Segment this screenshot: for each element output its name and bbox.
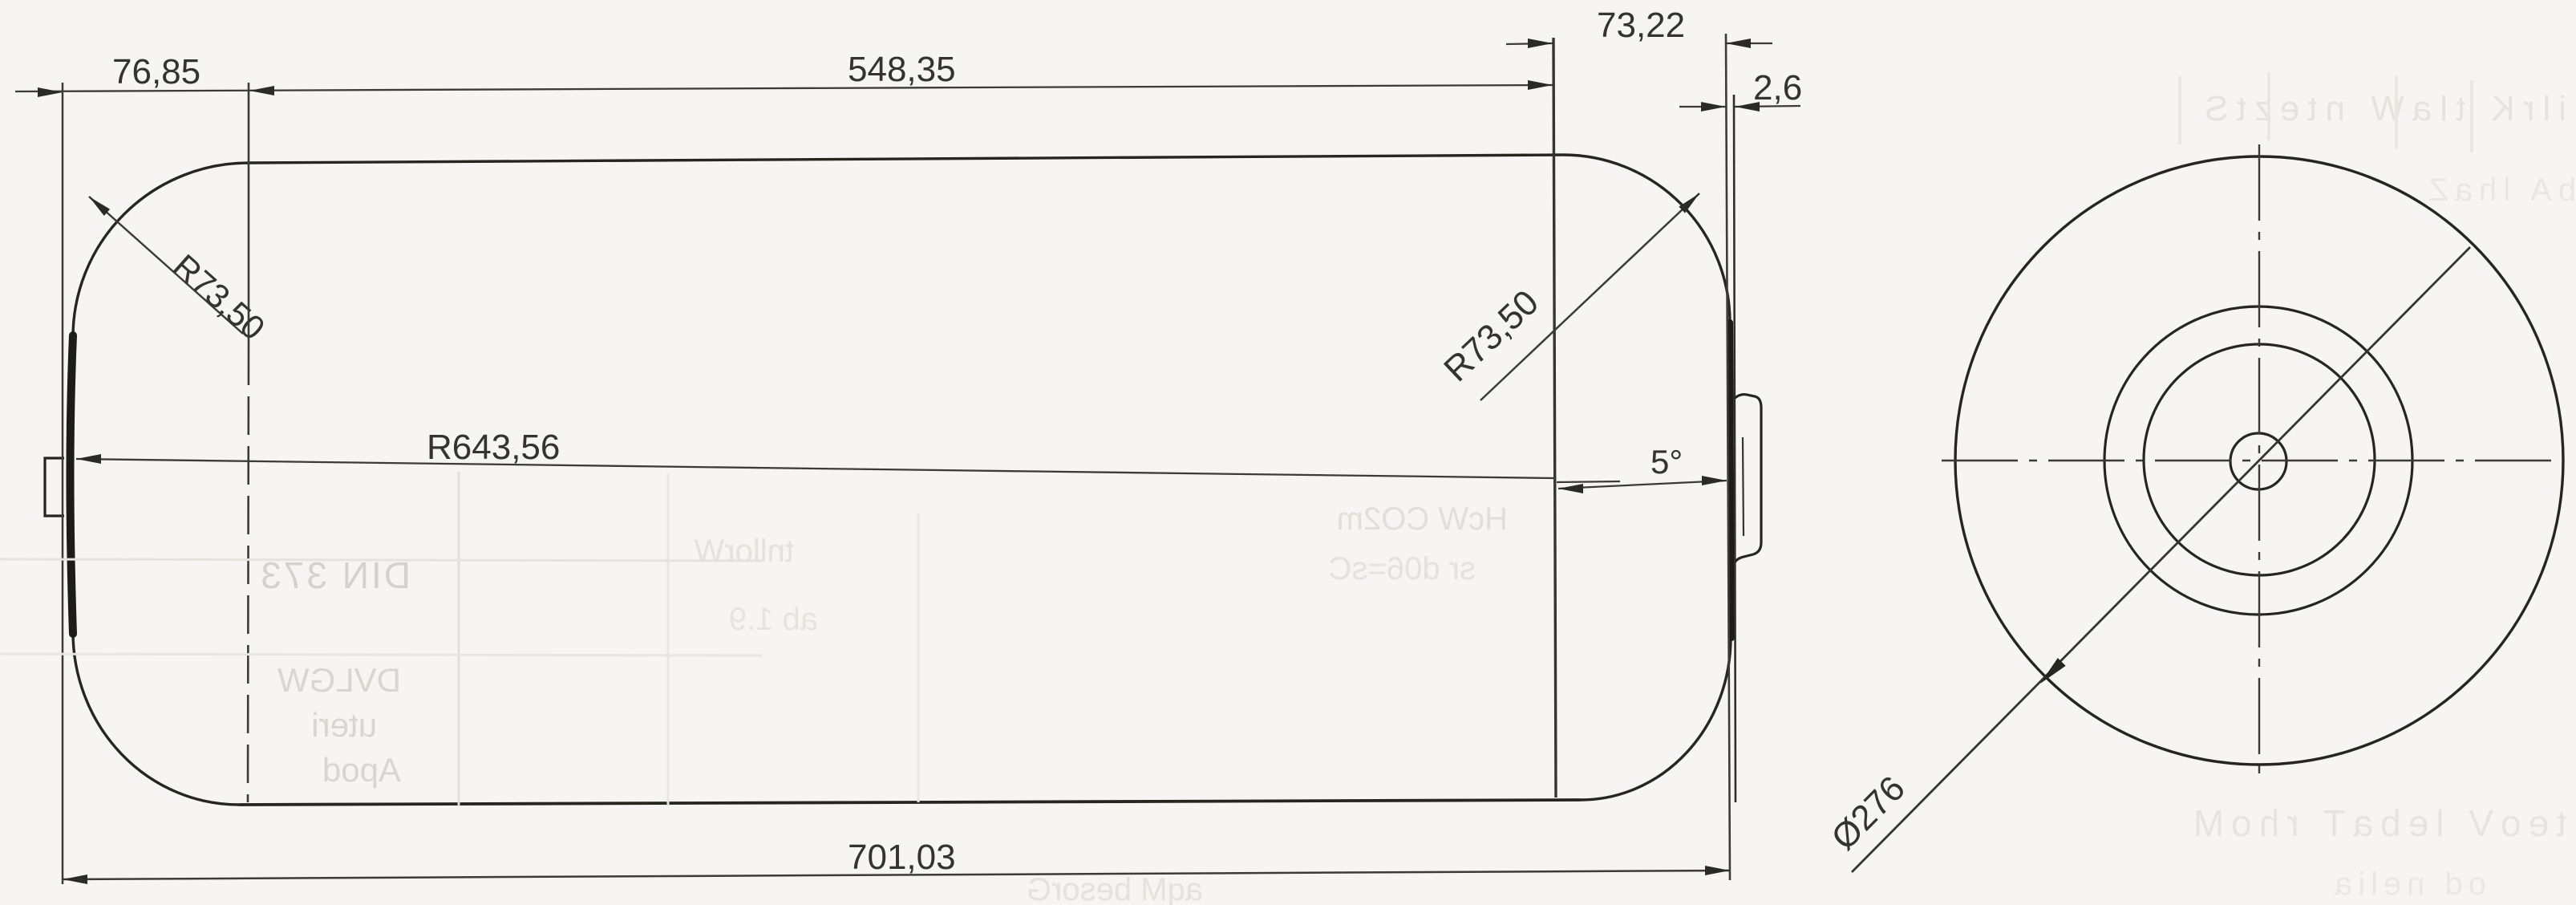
svg-text:ab 1.9: ab 1.9 — [729, 602, 818, 637]
svg-text:2,6: 2,6 — [1753, 68, 1802, 108]
svg-text:Apod: Apod — [322, 751, 401, 789]
svg-text:ilrK tlaW nteztS: ilrK tlaW nteztS — [2197, 89, 2566, 128]
svg-text:5°: 5° — [1651, 443, 1683, 481]
svg-text:aqM besorG: aqM besorG — [1027, 872, 1203, 905]
svg-text:bA lhaZ: bA lhaZ — [2422, 172, 2576, 208]
svg-text:uteri: uteri — [311, 706, 377, 744]
svg-text:tnllorW: tnllorW — [694, 534, 794, 569]
svg-text:HcW CO2m: HcW CO2m — [1337, 501, 1508, 537]
svg-text:DIN 373: DIN 373 — [258, 554, 411, 596]
svg-text:73,22: 73,22 — [1597, 6, 1685, 45]
svg-text:548,35: 548,35 — [848, 50, 956, 89]
svg-text:76,85: 76,85 — [112, 52, 200, 91]
svg-text:R643,56: R643,56 — [427, 428, 560, 467]
svg-text:od nelia: od nelia — [2329, 866, 2486, 902]
svg-text:701,03: 701,03 — [848, 838, 956, 877]
svg-text:DVLGW: DVLGW — [277, 661, 401, 699]
svg-text:sr d06=sC: sr d06=sC — [1329, 551, 1476, 586]
svg-text:teoV lebaT rhoM: teoV lebaT rhoM — [2186, 802, 2566, 844]
